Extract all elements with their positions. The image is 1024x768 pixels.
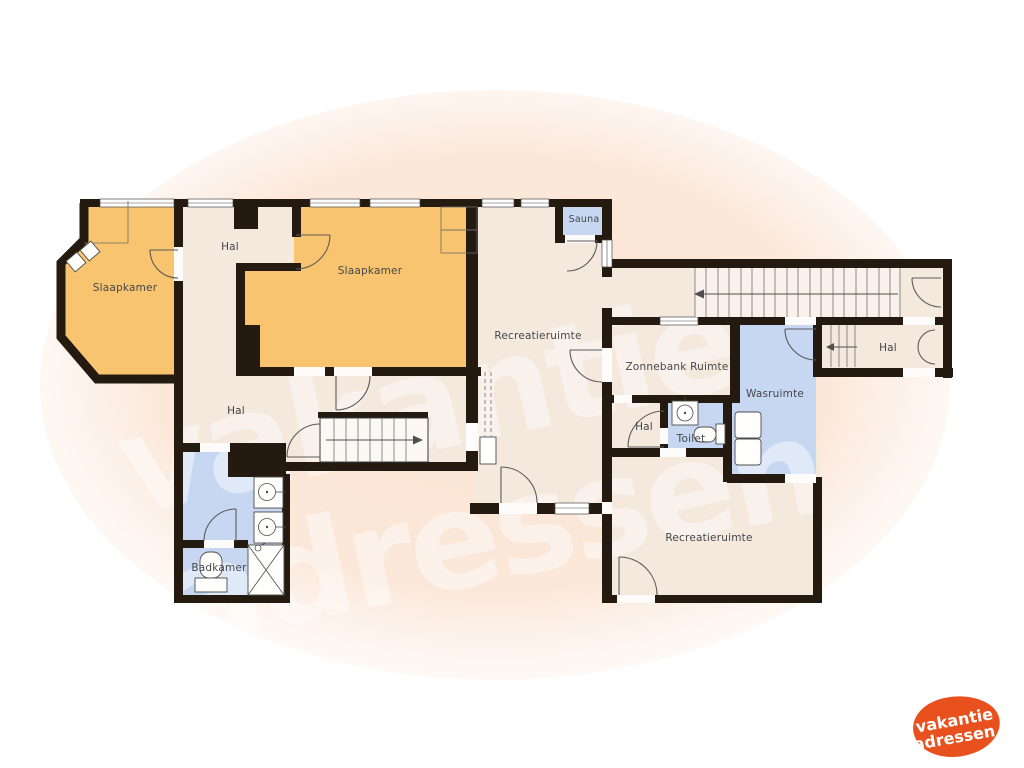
room-label-hal-left: Hal xyxy=(227,405,245,417)
room-label-slaapkamer-left: Slaapkamer xyxy=(93,282,158,294)
room-label-recreatieruimte-main: Recreatieruimte xyxy=(494,330,581,342)
floor-plan-page: vakantie adressen xyxy=(0,0,1024,768)
room-label-toilet: Toilet xyxy=(676,433,706,445)
room-label-hal-small: Hal xyxy=(635,421,653,433)
vakantieadressen-logo: vakantie adressen xyxy=(908,694,1002,760)
floor-plan: vakantie adressen xyxy=(0,0,1024,768)
duct-icon xyxy=(480,437,496,464)
room-label-slaapkamer-main: Slaapkamer xyxy=(338,265,403,277)
stairs-corridor xyxy=(694,268,900,317)
room-label-badkamer: Badkamer xyxy=(191,562,247,574)
room-label-wasruimte: Wasruimte xyxy=(746,388,804,400)
room-label-zonnebank: Zonnebank Ruimte xyxy=(626,361,729,373)
toilet-sink-icon xyxy=(672,397,698,425)
room-label-recreatieruimte-bottom: Recreatieruimte xyxy=(665,532,752,544)
stairs-central xyxy=(320,418,428,462)
room-label-hal-right: Hal xyxy=(879,342,897,354)
shower-icon xyxy=(248,543,284,595)
washbasin-icon xyxy=(254,477,286,508)
room-label-sauna: Sauna xyxy=(569,214,600,225)
washbasin-icon xyxy=(254,512,286,543)
room-label-hal-top: Hal xyxy=(221,241,239,253)
